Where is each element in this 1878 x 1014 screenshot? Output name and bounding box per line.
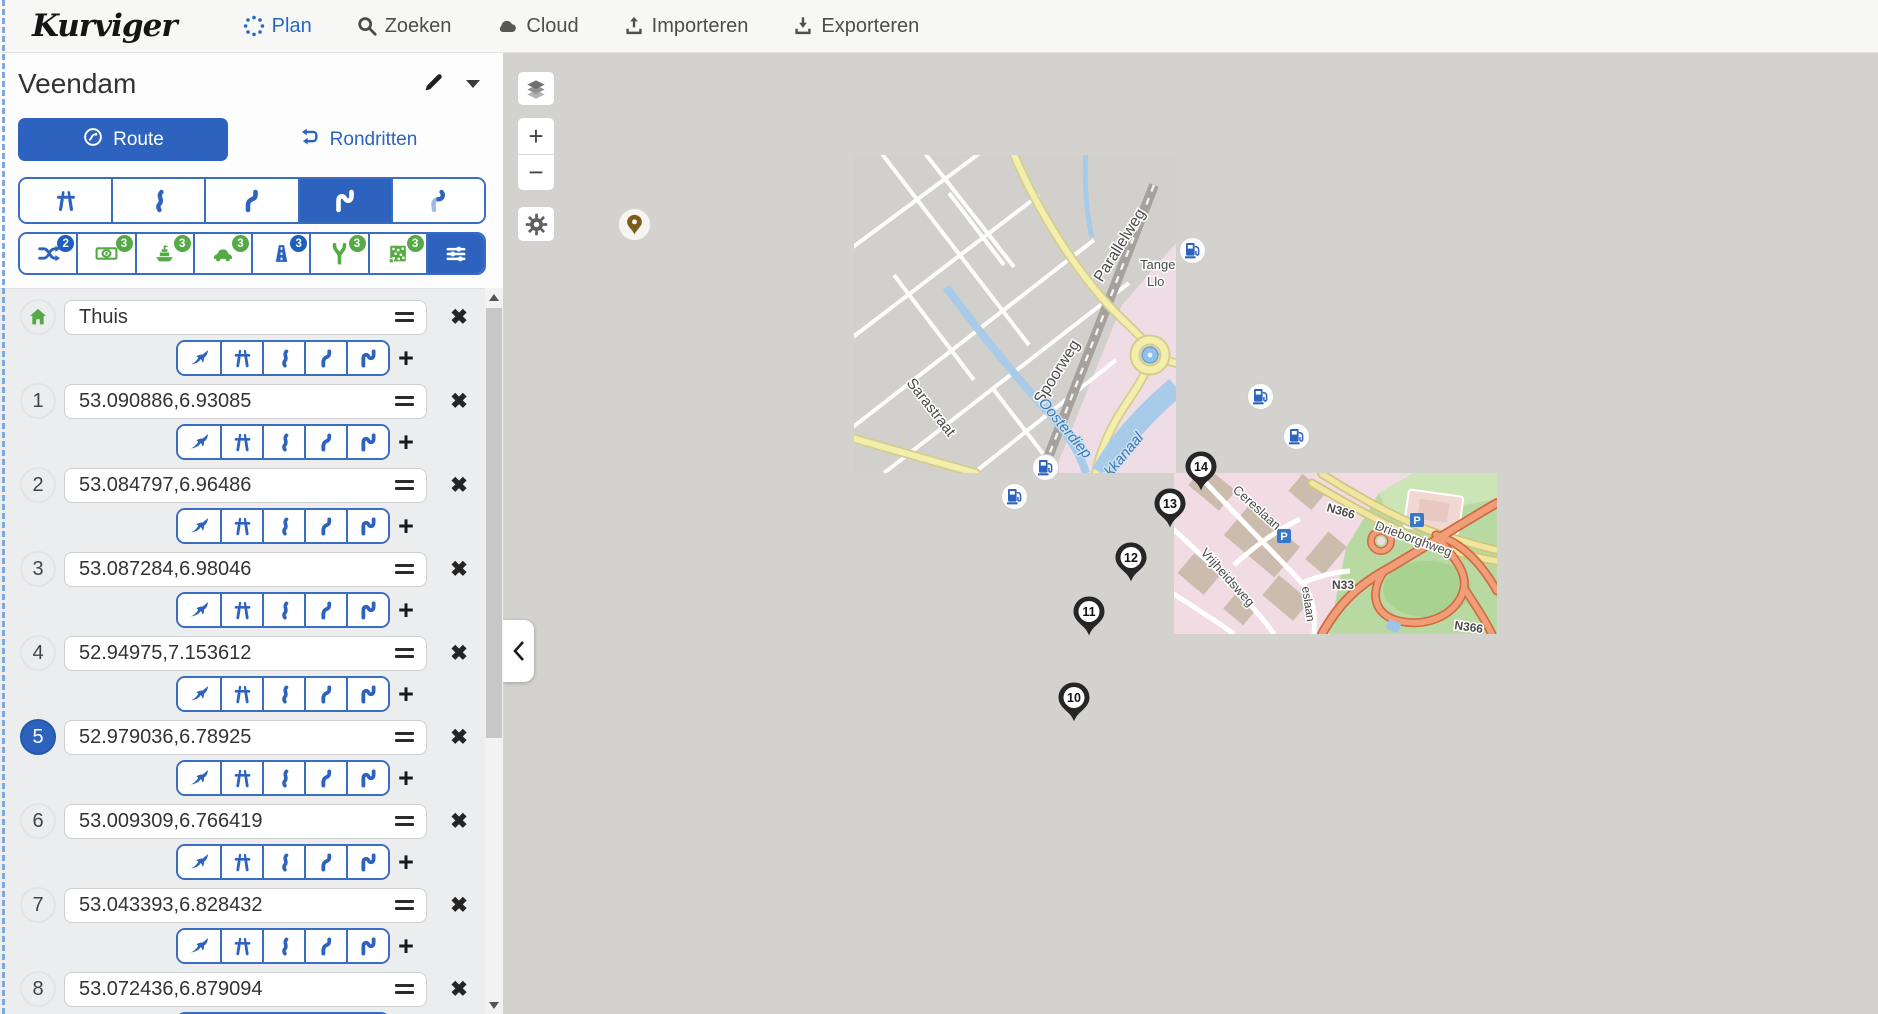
waypoint-marker[interactable]: 1 — [20, 383, 56, 419]
very-curvy-button[interactable] — [346, 678, 388, 710]
beeline-button[interactable] — [178, 762, 220, 794]
waypoint-profile-group — [176, 676, 390, 712]
very-curvy-button[interactable] — [346, 510, 388, 542]
zoom-in-button[interactable]: + — [518, 118, 554, 155]
layers-icon — [523, 76, 549, 102]
fuel-pump-icon — [1185, 242, 1200, 259]
option-badge: 3 — [349, 235, 366, 252]
nav-item-zoeken[interactable]: Zoeken — [356, 15, 452, 38]
remove-waypoint-button[interactable]: ✖ — [437, 719, 481, 755]
place-label: Tange — [1140, 257, 1175, 272]
bird-icon — [189, 684, 210, 705]
waypoint-item: 4 ✖ — [0, 635, 485, 712]
waypoint-item: 5 ✖ — [0, 719, 485, 796]
remove-waypoint-button[interactable]: ✖ — [437, 383, 481, 419]
fastest-button[interactable] — [220, 762, 262, 794]
curvy-button[interactable] — [304, 342, 346, 374]
remove-waypoint-button[interactable]: ✖ — [437, 803, 481, 839]
waypoint-marker[interactable]: 3 — [20, 551, 56, 587]
waypoint-number: 7 — [32, 894, 43, 917]
scroll-up-arrow[interactable] — [485, 288, 503, 306]
sidebar-scrollbar[interactable] — [485, 288, 503, 1014]
waypoint-item: 1 ✖ — [0, 383, 485, 460]
option-unpaved-button[interactable]: 3 — [309, 234, 367, 273]
remove-waypoint-button[interactable]: ✖ — [437, 635, 481, 671]
add-waypoint-button[interactable]: + — [390, 677, 422, 711]
very-curvy-button[interactable] — [346, 426, 388, 458]
pin-number: 13 — [1163, 497, 1177, 511]
map-tile-interchange: P P N366 Drieborghweg N33 N366 Cereslaan… — [1174, 473, 1497, 634]
waypoint-profile-group — [176, 424, 390, 460]
waypoint-profile-group — [176, 592, 390, 628]
parking-icon: P — [1413, 515, 1420, 527]
zoom-out-button[interactable]: − — [518, 155, 554, 191]
waypoint-input[interactable] — [64, 720, 427, 755]
waypoint-pin[interactable]: 10 — [1057, 681, 1091, 723]
waypoint-number: 2 — [32, 474, 43, 497]
curvy-button[interactable] — [304, 762, 346, 794]
nav-item-plan[interactable]: Plan — [243, 15, 312, 38]
option-motorway-button[interactable]: 3 — [251, 234, 309, 273]
waypoint-input[interactable] — [64, 804, 427, 839]
fastest-button[interactable] — [220, 342, 262, 374]
option-badge: 3 — [290, 235, 307, 252]
place-label: Llo — [1147, 274, 1164, 289]
fuel-station-marker[interactable] — [1247, 383, 1274, 410]
option-badge: 2 — [57, 235, 74, 252]
curvy-button[interactable] — [304, 678, 346, 710]
tab-route-label: Route — [113, 129, 164, 151]
nav-label: Cloud — [526, 15, 578, 38]
waypoint-number: 3 — [32, 558, 43, 581]
waypoint-marker[interactable]: 7 — [20, 887, 56, 923]
waypoint-list: ✖ — [0, 288, 485, 1014]
poi-marker[interactable] — [618, 208, 651, 241]
cloud-icon — [495, 15, 519, 37]
profile-curvy-light-button[interactable] — [111, 179, 204, 222]
sidebar-collapse-button[interactable] — [503, 620, 534, 682]
tab-rondritten-label: Rondritten — [330, 129, 418, 151]
profile-very-curvy-button[interactable] — [298, 179, 391, 222]
waypoint-input[interactable] — [64, 300, 427, 335]
fastest-button[interactable] — [220, 594, 262, 626]
very-curvy-button[interactable] — [346, 930, 388, 962]
option-settings-button[interactable] — [426, 234, 484, 273]
bird-icon — [189, 348, 210, 369]
waypoint-marker[interactable]: 2 — [20, 467, 56, 503]
option-badge: 3 — [174, 235, 191, 252]
fuel-pump-icon — [1289, 428, 1304, 445]
option-shuffle-button[interactable]: 2 — [20, 234, 76, 273]
chevron-left-icon — [510, 639, 528, 663]
waypoint-input[interactable] — [64, 888, 427, 923]
bird-icon — [189, 432, 210, 453]
add-waypoint-button[interactable]: + — [390, 929, 422, 963]
nav-item-cloud[interactable]: Cloud — [495, 15, 578, 38]
waypoint-marker[interactable]: 8 — [20, 971, 56, 1007]
bird-icon — [189, 768, 210, 789]
nav-item-importeren[interactable]: Importeren — [623, 15, 749, 38]
road-ref: N33 — [1332, 578, 1354, 592]
curvy-button[interactable] — [304, 510, 346, 542]
export-download-icon — [792, 15, 814, 37]
roundtrip-loop-icon — [297, 126, 321, 154]
option-car-button[interactable]: 3 — [193, 234, 251, 273]
bird-icon — [189, 852, 210, 873]
waypoint-pin[interactable]: 14 — [1184, 450, 1218, 492]
route-profile-group — [18, 177, 486, 224]
remove-waypoint-button[interactable]: ✖ — [437, 887, 481, 923]
waypoint-input[interactable] — [64, 636, 427, 671]
layers-button[interactable] — [516, 70, 556, 107]
curvy-light-button[interactable] — [262, 426, 304, 458]
map-canvas[interactable]: Sarastraat Spoorweg Parallelweg Oosterdi… — [503, 53, 1878, 1014]
curvy-light-button[interactable] — [262, 678, 304, 710]
waypoint-input[interactable] — [64, 468, 427, 503]
nav-label: Plan — [272, 15, 312, 38]
add-waypoint-button[interactable]: + — [390, 425, 422, 459]
drag-handle-icon[interactable] — [395, 312, 414, 322]
option-badge: 3 — [116, 235, 133, 252]
fastest-button[interactable] — [220, 930, 262, 962]
pin-number: 10 — [1067, 691, 1081, 705]
add-waypoint-button[interactable]: + — [390, 341, 422, 375]
route-sidebar: Veendam — [0, 53, 503, 1014]
waypoint-input[interactable] — [64, 972, 427, 1007]
parking-icon: P — [1280, 531, 1287, 543]
kurviger-logo: Kurviger — [32, 8, 177, 44]
remove-waypoint-button[interactable]: ✖ — [437, 467, 481, 503]
nav-menu: Plan Zoeken Cloud — [243, 15, 920, 38]
nav-label: Exporteren — [821, 15, 919, 38]
waypoint-item: 6 ✖ — [0, 803, 485, 880]
beeline-button[interactable] — [178, 846, 220, 878]
sidebar-header: Veendam — [0, 53, 503, 275]
top-navbar: Kurviger Plan Zoeken — [0, 0, 1878, 53]
very-curvy-button[interactable] — [346, 762, 388, 794]
waypoint-item: ✖ — [0, 299, 485, 376]
drag-handle-icon[interactable] — [395, 900, 414, 910]
chevron-down-icon[interactable] — [466, 80, 480, 88]
drag-handle-icon[interactable] — [395, 648, 414, 658]
beeline-button[interactable] — [178, 678, 220, 710]
route-title: Veendam — [18, 68, 136, 100]
waypoint-marker[interactable]: 4 — [20, 635, 56, 671]
bird-icon — [189, 516, 210, 537]
pin-number: 14 — [1194, 460, 1208, 474]
waypoint-item: 3 ✖ — [0, 551, 485, 628]
waypoint-pin[interactable]: 12 — [1114, 541, 1148, 583]
remove-waypoint-button[interactable]: ✖ — [437, 971, 481, 1007]
fuel-pump-icon — [1007, 488, 1022, 505]
search-icon — [356, 15, 378, 37]
curvy-light-button[interactable] — [262, 846, 304, 878]
beeline-button[interactable] — [178, 426, 220, 458]
add-waypoint-button[interactable]: + — [390, 509, 422, 543]
waypoint-pin[interactable]: 13 — [1153, 487, 1187, 529]
waypoint-profile-group — [176, 928, 390, 964]
curvy-light-button[interactable] — [262, 510, 304, 542]
curvy-light-button[interactable] — [262, 930, 304, 962]
fuel-station-marker[interactable] — [1001, 483, 1028, 510]
fastest-button[interactable] — [220, 510, 262, 542]
nav-label: Zoeken — [385, 15, 452, 38]
waypoint-marker[interactable]: 5 — [20, 719, 56, 755]
waypoint-number: 5 — [32, 726, 43, 749]
waypoint-input[interactable] — [64, 384, 427, 419]
waypoint-marker[interactable]: 6 — [20, 803, 56, 839]
very-curvy-button[interactable] — [346, 342, 388, 374]
scrollbar-thumb[interactable] — [486, 308, 502, 738]
curvy-light-button[interactable] — [262, 762, 304, 794]
fuel-station-marker[interactable] — [1032, 454, 1059, 481]
profile-curvy-button[interactable] — [204, 179, 297, 222]
fuel-pump-icon — [1253, 388, 1268, 405]
home-waypoint-marker[interactable] — [20, 299, 56, 335]
gear-icon — [524, 212, 549, 237]
bird-icon — [189, 600, 210, 621]
fastest-button[interactable] — [220, 678, 262, 710]
map-settings-button[interactable] — [516, 205, 556, 243]
route-icon — [82, 126, 104, 154]
curvy-light-button[interactable] — [262, 342, 304, 374]
app-window: Kurviger Plan Zoeken — [0, 0, 1878, 1014]
location-pin-icon — [626, 214, 643, 235]
waypoint-item: 8 ✖ — [0, 971, 485, 1014]
add-waypoint-button[interactable]: + — [390, 593, 422, 627]
drag-handle-icon[interactable] — [395, 480, 414, 490]
waypoint-item: 2 ✖ — [0, 467, 485, 544]
map-tile-veendam: Sarastraat Spoorweg Parallelweg Oosterdi… — [854, 155, 1176, 473]
option-cobblestone-button[interactable]: 3 — [368, 234, 426, 273]
pin-number: 11 — [1082, 605, 1095, 619]
waypoint-number: 1 — [32, 390, 43, 413]
remove-waypoint-button[interactable]: ✖ — [437, 551, 481, 587]
waypoint-number: 4 — [32, 642, 43, 665]
very-curvy-button[interactable] — [346, 846, 388, 878]
curvy-button[interactable] — [304, 846, 346, 878]
waypoint-number: 6 — [32, 810, 43, 833]
drag-handle-icon[interactable] — [395, 396, 414, 406]
drag-handle-icon[interactable] — [395, 564, 414, 574]
pin-number: 12 — [1124, 551, 1138, 565]
waypoint-input[interactable] — [64, 552, 427, 587]
option-badge: 3 — [232, 235, 249, 252]
home-icon — [27, 306, 49, 328]
zoom-control: + − — [516, 116, 556, 192]
tab-rondritten[interactable]: Rondritten — [228, 118, 486, 161]
waypoint-profile-group — [176, 508, 390, 544]
option-badge: 3 — [407, 235, 424, 252]
edit-pencil-icon[interactable] — [422, 70, 446, 99]
fastest-button[interactable] — [220, 426, 262, 458]
fuel-station-marker[interactable] — [1179, 237, 1206, 264]
drag-handle-icon[interactable] — [395, 984, 414, 994]
curvy-button[interactable] — [304, 426, 346, 458]
beeline-button[interactable] — [178, 510, 220, 542]
waypoint-profile-group — [176, 844, 390, 880]
drag-handle-icon[interactable] — [395, 732, 414, 742]
nav-label: Importeren — [652, 15, 749, 38]
beeline-button[interactable] — [178, 930, 220, 962]
bird-icon — [189, 936, 210, 957]
beeline-button[interactable] — [178, 594, 220, 626]
waypoint-item: 7 ✖ — [0, 887, 485, 964]
waypoint-profile-group — [176, 340, 390, 376]
drag-handle-icon[interactable] — [395, 816, 414, 826]
beeline-button[interactable] — [178, 342, 220, 374]
curvy-button[interactable] — [304, 930, 346, 962]
mode-tabs: Route Rondritten — [18, 118, 486, 161]
curvy-button[interactable] — [304, 594, 346, 626]
very-curvy-button[interactable] — [346, 594, 388, 626]
scroll-down-arrow[interactable] — [485, 996, 503, 1014]
curvy-light-button[interactable] — [262, 594, 304, 626]
waypoint-profile-group — [176, 760, 390, 796]
plan-dots-icon — [243, 15, 265, 37]
waypoint-pin[interactable]: 11 — [1072, 595, 1106, 637]
add-waypoint-button[interactable]: + — [390, 761, 422, 795]
route-options-group: 2 3 — [18, 232, 486, 275]
waypoint-number: 8 — [32, 978, 43, 1001]
profile-fastest-button[interactable] — [20, 179, 111, 222]
add-waypoint-button[interactable]: + — [390, 845, 422, 879]
fastest-button[interactable] — [220, 846, 262, 878]
remove-waypoint-button[interactable]: ✖ — [437, 299, 481, 335]
profile-extra-curvy-button[interactable] — [391, 179, 484, 222]
tab-route[interactable]: Route — [18, 118, 228, 161]
import-upload-icon — [623, 15, 645, 37]
nav-item-exporteren[interactable]: Exporteren — [792, 15, 919, 38]
option-toll-button[interactable]: 3 — [76, 234, 134, 273]
fuel-station-marker[interactable] — [1283, 423, 1310, 450]
fuel-pump-icon — [1038, 459, 1053, 476]
option-ferry-button[interactable]: 3 — [135, 234, 193, 273]
